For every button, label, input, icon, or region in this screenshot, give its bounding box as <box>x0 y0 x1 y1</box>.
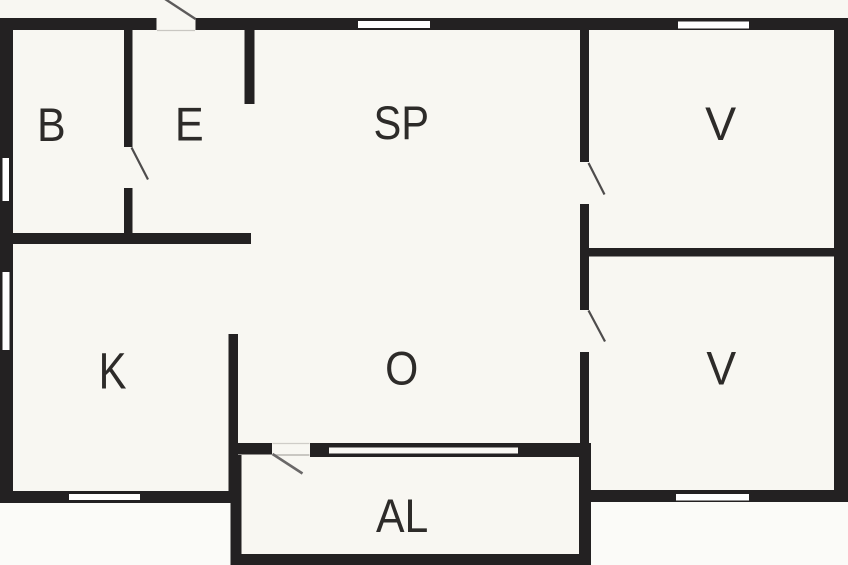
svg-text:V: V <box>706 342 736 394</box>
svg-text:AL: AL <box>376 489 428 543</box>
svg-text:O: O <box>385 342 418 395</box>
svg-text:B: B <box>37 98 66 151</box>
svg-text:E: E <box>175 98 204 151</box>
svg-text:K: K <box>99 343 127 400</box>
svg-text:SP: SP <box>373 98 429 150</box>
svg-text:V: V <box>705 98 736 150</box>
